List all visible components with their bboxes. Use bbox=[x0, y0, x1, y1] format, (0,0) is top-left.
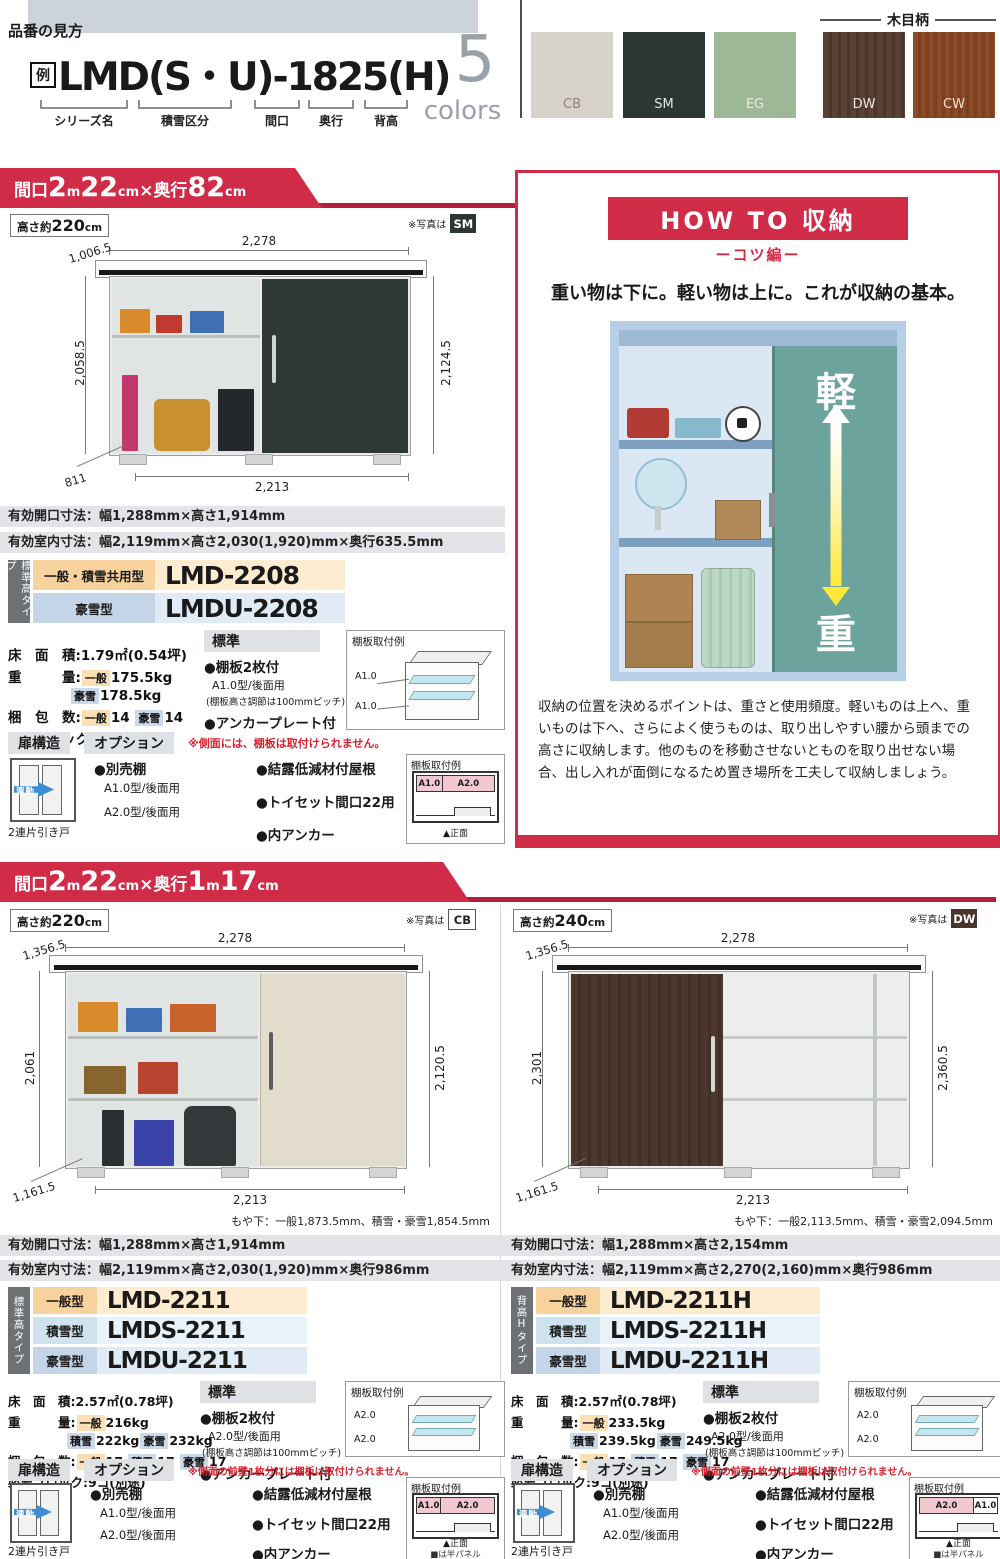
model-number: LMD-2211H bbox=[600, 1287, 820, 1314]
shed-roof-band bbox=[54, 965, 419, 970]
swatch-sm: SM bbox=[623, 32, 705, 118]
column-divider bbox=[500, 905, 501, 1559]
shed-door bbox=[262, 279, 408, 453]
spec-opening-size: 有効開口寸法：幅1,288mm×高さ2,154mm bbox=[503, 1235, 1000, 1256]
spec-opening-size: 有効開口寸法：幅1,288mm×高さ1,914mm bbox=[0, 506, 505, 527]
section1-height-label: 高さ約220cm bbox=[10, 214, 109, 237]
stored-item bbox=[184, 1106, 236, 1166]
dim-width-top: 2,278 bbox=[65, 931, 405, 945]
shed-foot bbox=[119, 454, 147, 465]
brace bbox=[40, 100, 128, 109]
toolbox-illustration bbox=[627, 408, 669, 438]
colors-count: 5 bbox=[440, 28, 510, 92]
dooropt-header: 扉構造 オプション ※側面には、棚板は取付けられません。 bbox=[8, 732, 497, 754]
shelf-line bbox=[723, 1036, 907, 1039]
options-col2: ●結露低減材付屋根 ●トイセット間口22用 ●内アンカー bbox=[252, 1483, 402, 1559]
spec-opening-size: 有効開口寸法：幅1,288mm×高さ1,914mm bbox=[0, 1235, 503, 1256]
options-col1: ●別売棚 A1.0型/後面用 A2.0型/後面用 bbox=[593, 1483, 749, 1543]
front-cell: A1.0 bbox=[417, 776, 443, 791]
shed-foot bbox=[369, 1167, 397, 1178]
shelf-line bbox=[68, 1036, 258, 1039]
shed-foot bbox=[221, 1167, 249, 1178]
dim-line-left bbox=[39, 971, 40, 1167]
options-col2: ●結露低減材付屋根 ●トイセット間口22用 ●内アンカー bbox=[755, 1483, 905, 1559]
stored-item bbox=[218, 389, 254, 451]
iso-label: A2.0 bbox=[857, 1434, 879, 1445]
front-cell: A2.0 bbox=[920, 1498, 974, 1513]
shed-door bbox=[571, 974, 723, 1166]
section1-details: 床 面 積:1.79㎡(0.54坪) 重 量:一般175.5kg 豪雪178.5… bbox=[8, 630, 497, 730]
front-drawing: A1.0 A2.0 bbox=[412, 771, 499, 823]
brace bbox=[138, 100, 232, 109]
shed-roof-band bbox=[557, 965, 922, 970]
eyebrow-bar bbox=[28, 0, 478, 33]
height-label: 高さ約220cm bbox=[10, 909, 109, 932]
model-table-tab: 標準高タイプ bbox=[8, 1287, 30, 1374]
options-title: オプション bbox=[84, 732, 174, 754]
column-2211: 高さ約220cm ※写真は CB 2,278 1,356.5 bbox=[0, 905, 497, 1559]
model-table-2208: 標準高タイプ 一般・積雪共用型 LMD-2208 豪雪型 LMDU-2208 bbox=[8, 560, 345, 623]
model-type: 豪雪型 bbox=[536, 1347, 600, 1374]
options-note: ※側面の前壁1枚分には棚板は取付けられません。 bbox=[691, 1463, 917, 1478]
door-structure-title: 扉構造 bbox=[8, 1459, 70, 1481]
model-table-tab: 標準高タイプ bbox=[8, 560, 30, 623]
stored-item bbox=[122, 375, 138, 451]
shed-figure-2211h: 2,278 1,356.5 2,301 2,360.5 bbox=[528, 933, 968, 1209]
section1-photo-note: ※写真は SM bbox=[408, 214, 476, 233]
shed-figure-2211: 2,278 1,356.5 bbox=[25, 933, 465, 1209]
legend-snow-class: 積雪区分 bbox=[138, 100, 232, 129]
chip-heavy-snow: 豪雪 bbox=[71, 688, 99, 704]
dim-depth-bottom: 811 bbox=[63, 470, 88, 490]
front-shelf-band: A1.0 A2.0 bbox=[416, 775, 495, 792]
shed-body bbox=[568, 971, 910, 1169]
stored-item bbox=[156, 315, 182, 333]
options-title: オプション bbox=[84, 1459, 174, 1481]
front-cell: A1.0 bbox=[417, 1498, 441, 1513]
legend-width: 間口 bbox=[254, 100, 300, 129]
model-table-2211: 標準高タイプ 一般型 LMD-2211 積雪型 LMDS-2211 豪雪型 LM… bbox=[8, 1287, 307, 1374]
legend-series: シリーズ名 bbox=[40, 100, 128, 129]
model-row: 豪雪型 LMDU-2211 bbox=[33, 1347, 307, 1374]
iso-label: A1.0 bbox=[355, 671, 377, 682]
dim-line-bottom bbox=[598, 1189, 908, 1190]
dim-width-bottom: 2,213 bbox=[95, 1193, 405, 1207]
weight-arrow bbox=[830, 422, 841, 586]
front-shelf-band: A2.0 A1.0 bbox=[919, 1497, 998, 1514]
ball-patch bbox=[737, 418, 747, 428]
iso-shelf bbox=[408, 675, 475, 684]
dooropt: 扉構造 オプション ※側面の前壁1枚分には棚板は取付けられません。 連動 2連片… bbox=[511, 1459, 1000, 1559]
howto-panel: HOW TO 収納 ーコツ編ー 重い物は下に。軽い物は上に。これが収納の基本。 bbox=[515, 170, 1000, 848]
model-table-2211h: 背高Hタイプ 一般型 LMD-2211H 積雪型 LMDS-2211H 豪雪型 … bbox=[511, 1287, 820, 1374]
model-row: 豪雪型 LMDU-2208 bbox=[33, 593, 345, 623]
brace bbox=[254, 100, 300, 109]
stored-item bbox=[126, 1008, 162, 1032]
front-shelf-band: A1.0 A2.0 bbox=[416, 1497, 495, 1514]
howto-subtitle: ーコツ編ー bbox=[518, 244, 998, 265]
options-note: ※側面には、棚板は取付けられません。 bbox=[188, 735, 385, 751]
model-type: 一般・積雪共用型 bbox=[33, 560, 155, 590]
stored-item bbox=[120, 309, 150, 333]
stored-item bbox=[190, 311, 224, 333]
iso-label: A2.0 bbox=[857, 1410, 879, 1421]
front-cell: A2.0 bbox=[443, 776, 494, 791]
howto-roof bbox=[619, 330, 897, 346]
iso-label: A2.0 bbox=[354, 1410, 376, 1421]
options-note: ※側面の前壁1枚分には棚板は取付けられません。 bbox=[188, 1463, 414, 1478]
spec-interior-size: 有効室内寸法：幅2,119mm×高さ2,270(2,160)mm×奥行986mm bbox=[503, 1260, 1000, 1281]
swatch-eg: EG bbox=[714, 32, 796, 118]
shelf-example-iso: 棚板取付例 A2.0 A2.0 bbox=[345, 1381, 505, 1457]
photo-note: ※写真は CB bbox=[406, 909, 476, 930]
chip-heavy-snow: 豪雪 bbox=[140, 1433, 168, 1449]
iso-shelf bbox=[412, 1415, 477, 1423]
suitcase-illustration bbox=[701, 568, 755, 668]
model-code-example: LMD(S・U)-1825(H) bbox=[58, 46, 449, 102]
door-caption: 2連片引き戸 bbox=[8, 824, 70, 840]
front-cell: A2.0 bbox=[441, 1498, 494, 1513]
moya-note: もや下：一般1,873.5mm、積雪・豪雪1,854.5mm bbox=[130, 1213, 490, 1229]
model-number: LMDU-2211H bbox=[600, 1347, 820, 1374]
photo-note: ※写真は DW bbox=[909, 909, 977, 928]
shelf-line bbox=[112, 335, 260, 338]
section1-dooropt: 扉構造 オプション ※側面には、棚板は取付けられません。 連動 2連片引き戸 ●… bbox=[8, 732, 497, 844]
brace bbox=[308, 100, 354, 109]
colors-word: colors bbox=[415, 96, 510, 126]
shelf-line bbox=[723, 1098, 907, 1101]
front-notch bbox=[957, 1523, 994, 1532]
front-drawing: A1.0 A2.0 bbox=[412, 1493, 499, 1539]
shelf-line bbox=[68, 1098, 258, 1101]
door-caption: 2連片引き戸 bbox=[8, 1543, 70, 1559]
dim-width-top: 2,278 bbox=[109, 234, 409, 248]
wood-grain-label: 木目柄 bbox=[820, 10, 996, 30]
shelf-example-front: 棚板取付例 A1.0 A2.0 ▲正面 bbox=[406, 754, 505, 844]
iso-shelf bbox=[408, 691, 475, 700]
wood-line bbox=[820, 19, 881, 21]
dim-height-left: 2,061 bbox=[23, 1051, 37, 1085]
front-caption2: ■は半パネル bbox=[407, 1548, 504, 1559]
details: 床 面 積:2.57㎡(0.78坪) 重 量:一般216kg 積雪222kg豪雪… bbox=[8, 1381, 497, 1457]
model-row: 一般・積雪共用型 LMD-2208 bbox=[33, 560, 345, 590]
dim-line-right bbox=[433, 276, 434, 454]
shed-foot bbox=[77, 1167, 105, 1178]
door-caption: 2連片引き戸 bbox=[511, 1543, 573, 1559]
model-number: LMD-2208 bbox=[155, 560, 345, 590]
shelf-example-iso: 棚板取付例 A2.0 A2.0 bbox=[848, 1381, 1000, 1457]
legend-depth: 奥行 bbox=[308, 100, 354, 129]
model-row: 一般型 LMD-2211 bbox=[33, 1287, 307, 1314]
wood-line bbox=[935, 19, 996, 21]
shed-roof-band bbox=[99, 270, 422, 275]
swatch-cb: CB bbox=[531, 32, 613, 118]
dim-line-bottom bbox=[135, 476, 409, 477]
iso-shelf bbox=[915, 1428, 980, 1436]
large-box-illustration bbox=[625, 622, 693, 668]
model-number: LMDU-2208 bbox=[155, 593, 345, 623]
dim-depth-bottom: 1,161.5 bbox=[514, 1179, 560, 1205]
large-box-illustration bbox=[625, 574, 693, 622]
door-diagram: 連動 bbox=[10, 1483, 72, 1543]
dim-width-bottom: 2,213 bbox=[598, 1193, 908, 1207]
heavy-kanji: 重 bbox=[775, 602, 897, 660]
shed-foot bbox=[724, 1167, 752, 1178]
standard-equipment: 標準 ●棚板2枚付 A1.0型/後面用 (棚板高さ調節は100mmピッチ) ●ア… bbox=[204, 630, 340, 732]
front-caption: ▲正面 bbox=[407, 826, 504, 839]
model-type: 豪雪型 bbox=[33, 1347, 97, 1374]
basket-illustration bbox=[675, 418, 721, 438]
model-row: 豪雪型 LMDU-2211H bbox=[536, 1347, 820, 1374]
dim-line-top bbox=[109, 250, 409, 251]
swatch-dw: DW bbox=[823, 32, 905, 118]
model-type: 一般型 bbox=[33, 1287, 97, 1314]
model-row: 積雪型 LMDS-2211H bbox=[536, 1317, 820, 1344]
dim-height-left: 2,058.5 bbox=[73, 340, 87, 386]
spec-interior-size: 有効室内寸法：幅2,119mm×高さ2,030(1,920)mm×奥行635.5… bbox=[0, 532, 505, 553]
iso-shelf bbox=[915, 1415, 980, 1423]
shed-body bbox=[109, 276, 411, 456]
legend-height: 背高 bbox=[364, 100, 408, 129]
door-handle bbox=[272, 335, 276, 383]
stored-item bbox=[134, 1120, 174, 1166]
shelf-example-front: 棚板取付例 A1.0 A2.0 ▲正面 ■は半パネル bbox=[406, 1477, 505, 1559]
dim-height-left: 2,301 bbox=[530, 1051, 544, 1085]
dim-line-top bbox=[65, 947, 405, 948]
dim-depth-bottom: 1,161.5 bbox=[11, 1179, 57, 1205]
spec-interior-size: 有効室内寸法：幅2,119mm×高さ2,030(1,920)mm×奥行986mm bbox=[0, 1260, 503, 1281]
section2-ribbon-title: 間口2m22cm×奥行1m17cm bbox=[0, 862, 494, 902]
arrow-up-icon bbox=[822, 404, 850, 423]
dim-width-bottom: 2,213 bbox=[135, 480, 409, 494]
chip-snow: 積雪 bbox=[67, 1433, 95, 1449]
front-caption2: ■は半パネル bbox=[910, 1548, 1000, 1559]
door-diagram: 連動 bbox=[10, 758, 76, 822]
howto-title: HOW TO 収納 bbox=[608, 197, 908, 240]
eyebrow-title: 品番の見方 bbox=[8, 20, 83, 41]
fan-stand bbox=[655, 506, 661, 530]
model-type: 積雪型 bbox=[536, 1317, 600, 1344]
chip-general: 一般 bbox=[82, 710, 110, 726]
stored-item bbox=[170, 1004, 216, 1032]
fan-illustration bbox=[635, 458, 687, 510]
howto-door-handle bbox=[769, 493, 775, 527]
shed-foot bbox=[872, 1167, 900, 1178]
box-illustration bbox=[715, 500, 761, 540]
front-drawing: A2.0 A1.0 bbox=[915, 1493, 1000, 1539]
options-title: オプション bbox=[587, 1459, 677, 1481]
interior-frame bbox=[873, 974, 877, 1166]
howto-illustration: 軽 重 bbox=[610, 321, 906, 681]
example-badge: 例 bbox=[30, 62, 56, 88]
catalog-page: 品番の見方 例 LMD(S・U)-1825(H) シリーズ名 積雪区分 間口 奥… bbox=[0, 0, 1000, 1559]
chip-snow: 積雪 bbox=[570, 1433, 598, 1449]
howto-lead: 重い物は下に。軽い物は上に。これが収納の基本。 bbox=[518, 279, 998, 305]
iso-shelf bbox=[412, 1428, 477, 1436]
options-col1: ●別売棚 A1.0型/後面用 A2.0型/後面用 bbox=[90, 1483, 246, 1543]
model-type: 一般型 bbox=[536, 1287, 600, 1314]
front-cell: A1.0 bbox=[974, 1498, 997, 1513]
model-row: 積雪型 LMDS-2211 bbox=[33, 1317, 307, 1344]
chip-heavy-snow: 豪雪 bbox=[657, 1433, 685, 1449]
model-number: LMDS-2211H bbox=[600, 1317, 820, 1344]
section2-ribbon: 間口2m22cm×奥行1m17cm bbox=[0, 862, 996, 902]
details: 床 面 積:2.57㎡(0.78坪) 重 量:一般233.5kg 積雪239.5… bbox=[511, 1381, 1000, 1457]
dooropt: 扉構造 オプション ※側面の前壁1枚分には棚板は取付けられません。 連動 2連片… bbox=[8, 1459, 497, 1559]
chip-general: 一般 bbox=[580, 1415, 608, 1431]
moya-note: もや下：一般2,113.5mm、積雪・豪雪2,094.5mm bbox=[633, 1213, 993, 1229]
height-label: 高さ約240cm bbox=[513, 909, 612, 932]
dim-height-right: 2,124.5 bbox=[439, 340, 453, 386]
dim-width-top: 2,278 bbox=[568, 931, 908, 945]
chip-general: 一般 bbox=[77, 1415, 105, 1431]
shed-door bbox=[260, 974, 405, 1166]
door-handle bbox=[269, 1032, 273, 1090]
model-row: 一般型 LMD-2211H bbox=[536, 1287, 820, 1314]
dim-line-right bbox=[429, 971, 430, 1167]
model-number: LMD-2211 bbox=[97, 1287, 307, 1314]
model-number: LMDU-2211 bbox=[97, 1347, 307, 1374]
dim-height-right: 2,120.5 bbox=[433, 1045, 447, 1091]
dim-line-right bbox=[932, 971, 933, 1167]
model-number: LMDS-2211 bbox=[97, 1317, 307, 1344]
howto-body-text: 収納の位置を決めるポイントは、重さと使用頻度。軽いものは上へ、重いものは下へ、さ… bbox=[538, 697, 978, 784]
shed-foot bbox=[245, 454, 273, 465]
dim-line-top bbox=[568, 947, 908, 948]
shed-foot bbox=[580, 1167, 608, 1178]
howto-door: 軽 重 bbox=[772, 346, 897, 672]
shed-interior bbox=[68, 974, 258, 1166]
model-table-tab: 背高Hタイプ bbox=[511, 1287, 533, 1374]
shed-interior bbox=[112, 279, 260, 453]
model-type: 豪雪型 bbox=[33, 593, 155, 623]
shed-figure-2208: 2,278 1,006.5 2,058.5 2,124.5 bbox=[75, 236, 455, 500]
door-handle bbox=[711, 1036, 715, 1092]
front-notch bbox=[454, 1523, 491, 1532]
section1-ribbon-title: 間口2m22cm×奥行82cm bbox=[0, 168, 344, 208]
stored-item bbox=[154, 399, 210, 451]
stored-item bbox=[84, 1066, 126, 1094]
stored-item bbox=[102, 1110, 124, 1166]
stored-item bbox=[78, 1002, 118, 1032]
stored-item bbox=[138, 1062, 178, 1094]
header-divider bbox=[520, 0, 522, 118]
howto-bottom-bar bbox=[518, 835, 998, 845]
shelf-example-iso: 棚板取付例 A1.0 A1.0 bbox=[346, 630, 505, 730]
shed-foot bbox=[373, 454, 401, 465]
dim-height-right: 2,360.5 bbox=[936, 1045, 950, 1091]
chip-heavy-snow: 豪雪 bbox=[135, 710, 163, 726]
options-col2: ●結露低減材付屋根 ●トイセット間口22用 ●内アンカー bbox=[256, 758, 406, 844]
door-diagram: 連動 bbox=[513, 1483, 575, 1543]
shed-body bbox=[65, 971, 407, 1169]
howto-shed-interior: 軽 重 bbox=[619, 330, 897, 672]
column-2211h: 高さ約240cm ※写真は DW 2,278 1,356.5 bbox=[503, 905, 1000, 1559]
shelf-example-front: 棚板取付例 A2.0 A1.0 ▲正面 ■は半パネル bbox=[909, 1477, 1000, 1559]
iso-label: A1.0 bbox=[355, 701, 377, 712]
swatch-cw: CW bbox=[913, 32, 995, 118]
iso-label: A2.0 bbox=[354, 1434, 376, 1445]
door-structure-title: 扉構造 bbox=[511, 1459, 573, 1481]
shed-interior bbox=[723, 974, 907, 1166]
model-type: 積雪型 bbox=[33, 1317, 97, 1344]
door-structure-title: 扉構造 bbox=[8, 732, 70, 754]
howto-shelf bbox=[619, 440, 775, 449]
photo-chip-dw: DW bbox=[951, 909, 977, 928]
photo-chip-cb: CB bbox=[448, 909, 476, 930]
brace bbox=[364, 100, 408, 109]
photo-chip-sm: SM bbox=[450, 214, 476, 233]
front-notch bbox=[454, 807, 491, 816]
options-col1: ●別売棚 A1.0型/後面用 A2.0型/後面用 bbox=[94, 758, 252, 820]
dim-line-bottom bbox=[95, 1189, 405, 1190]
chip-general: 一般 bbox=[82, 670, 110, 686]
